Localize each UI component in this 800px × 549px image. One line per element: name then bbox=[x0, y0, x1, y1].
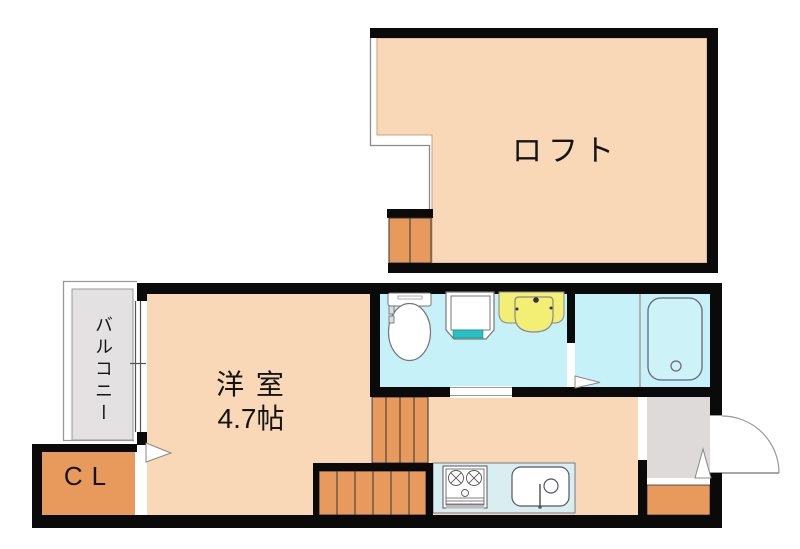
entrance-door-icon bbox=[710, 415, 779, 473]
washing-machine-pan-icon bbox=[446, 292, 494, 339]
loft-ladder-icon bbox=[387, 209, 433, 263]
genkan-opening bbox=[638, 397, 647, 460]
kitchen-sink-icon bbox=[512, 467, 569, 509]
room-size-label: 4.7帖 bbox=[171, 397, 331, 437]
toilet-icon bbox=[388, 293, 431, 361]
balcony-label: バルコニー bbox=[92, 301, 114, 439]
floorplan: ロフト 洋 室 4.7帖 バルコニー CL bbox=[0, 0, 800, 549]
gas-stove-icon bbox=[443, 466, 487, 509]
changing-area bbox=[575, 294, 639, 387]
porch bbox=[647, 485, 710, 515]
closet-label: CL bbox=[38, 461, 135, 492]
loft-label: ロフト bbox=[480, 126, 652, 170]
bathtub-icon bbox=[648, 298, 702, 380]
washroom-doorway bbox=[450, 386, 512, 398]
